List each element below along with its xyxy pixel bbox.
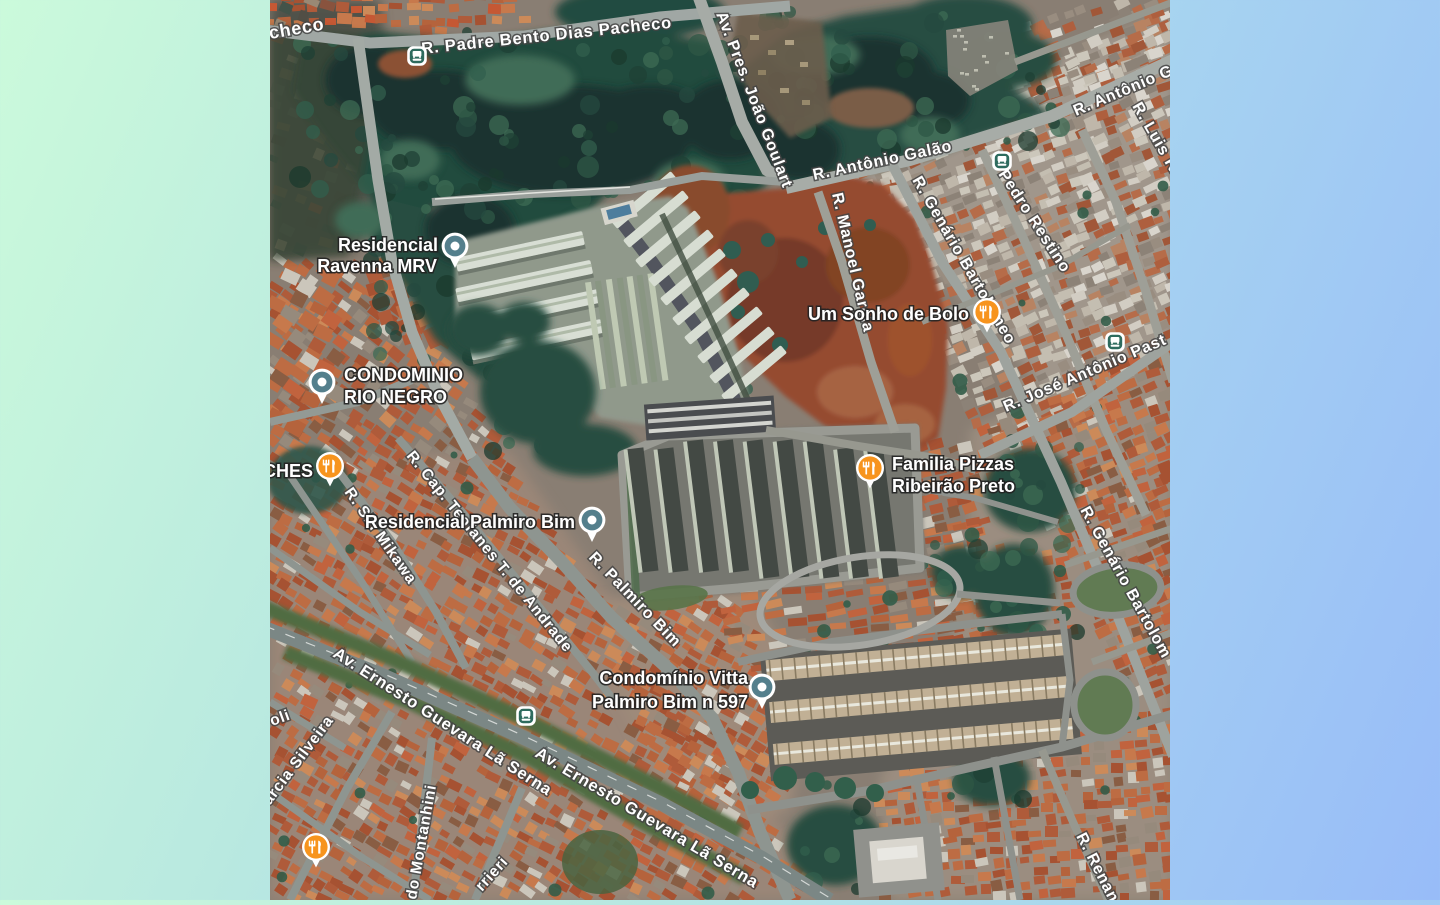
svg-text:CONDOMINIO: CONDOMINIO	[344, 365, 463, 385]
svg-text:Palmiro Bim n 597: Palmiro Bim n 597	[592, 692, 748, 712]
svg-text:Ribeirão Preto: Ribeirão Preto	[892, 476, 1015, 496]
svg-text:Residencial Palmiro Bim: Residencial Palmiro Bim	[365, 512, 575, 532]
svg-text:Familia Pizzas: Familia Pizzas	[892, 454, 1014, 474]
svg-text:Condomínio Vitta: Condomínio Vitta	[599, 668, 749, 688]
svg-text:RIO NEGRO: RIO NEGRO	[344, 387, 447, 407]
svg-text:Residencial: Residencial	[338, 235, 438, 255]
svg-text:Ravenna MRV: Ravenna MRV	[317, 256, 437, 276]
svg-text:Um Sonho de Bolo: Um Sonho de Bolo	[808, 304, 969, 324]
svg-text:CHES: CHES	[270, 461, 313, 481]
